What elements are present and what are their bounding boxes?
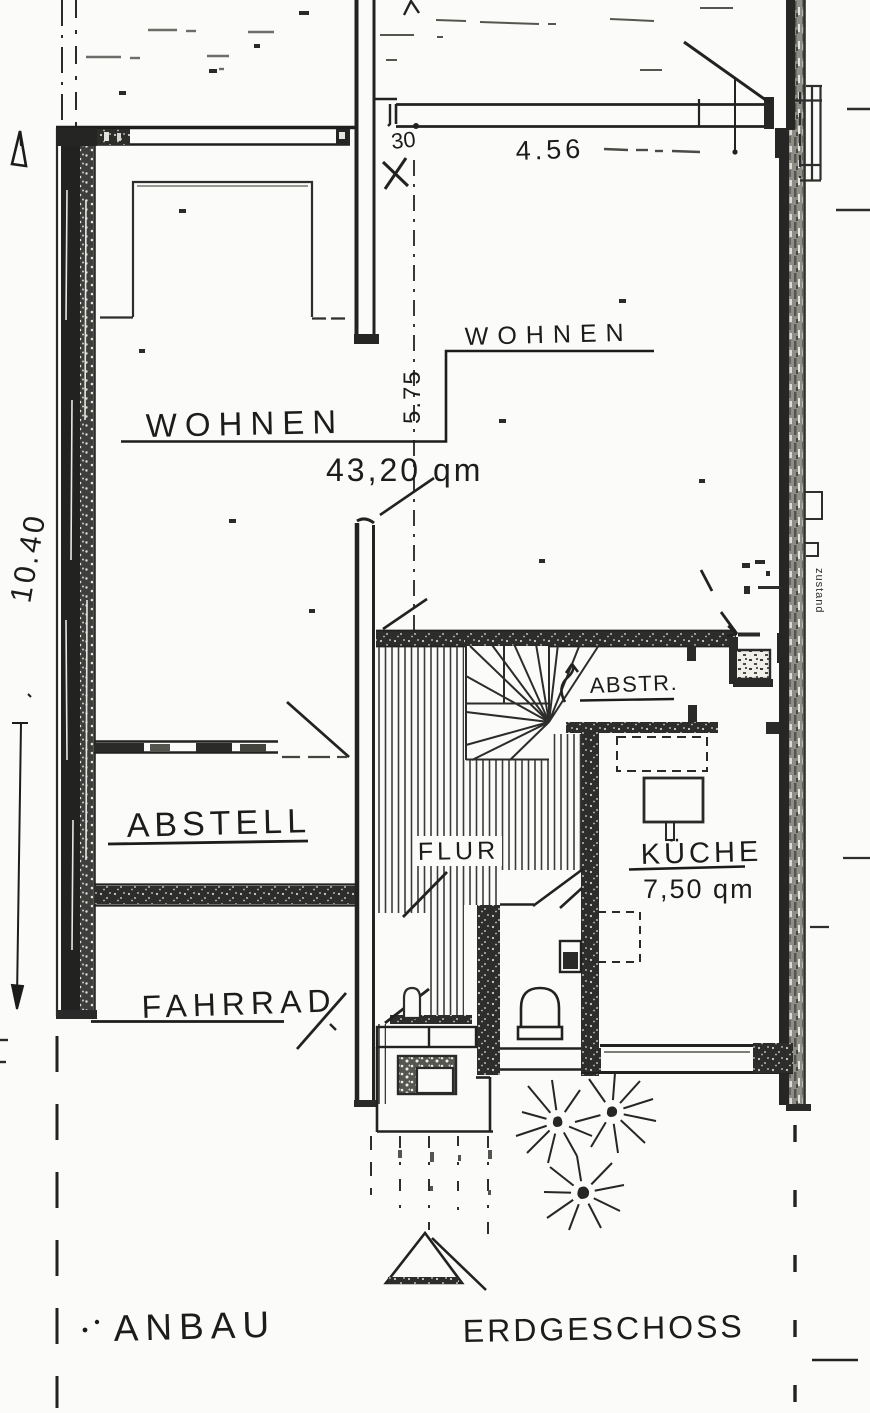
svg-text:ERDGESCHOSS: ERDGESCHOSS bbox=[462, 1308, 745, 1349]
svg-text:FLUR: FLUR bbox=[418, 837, 500, 866]
svg-text:ANBAU: ANBAU bbox=[113, 1304, 277, 1349]
svg-text:43,20 qm: 43,20 qm bbox=[326, 452, 483, 488]
svg-text:7,50 qm: 7,50 qm bbox=[643, 874, 755, 904]
svg-text:WOHNEN: WOHNEN bbox=[145, 403, 344, 444]
svg-text:30: 30 bbox=[390, 127, 417, 154]
svg-text:ABSTELL: ABSTELL bbox=[126, 802, 311, 845]
svg-text:zustand: zustand bbox=[813, 568, 825, 614]
svg-text:5.75: 5.75 bbox=[399, 369, 426, 424]
svg-text:WOHNEN: WOHNEN bbox=[464, 319, 633, 351]
svg-text:FAHRRAD: FAHRRAD bbox=[141, 982, 337, 1025]
svg-text:4.56: 4.56 bbox=[515, 134, 585, 166]
svg-text:ABSTR.: ABSTR. bbox=[589, 670, 678, 698]
